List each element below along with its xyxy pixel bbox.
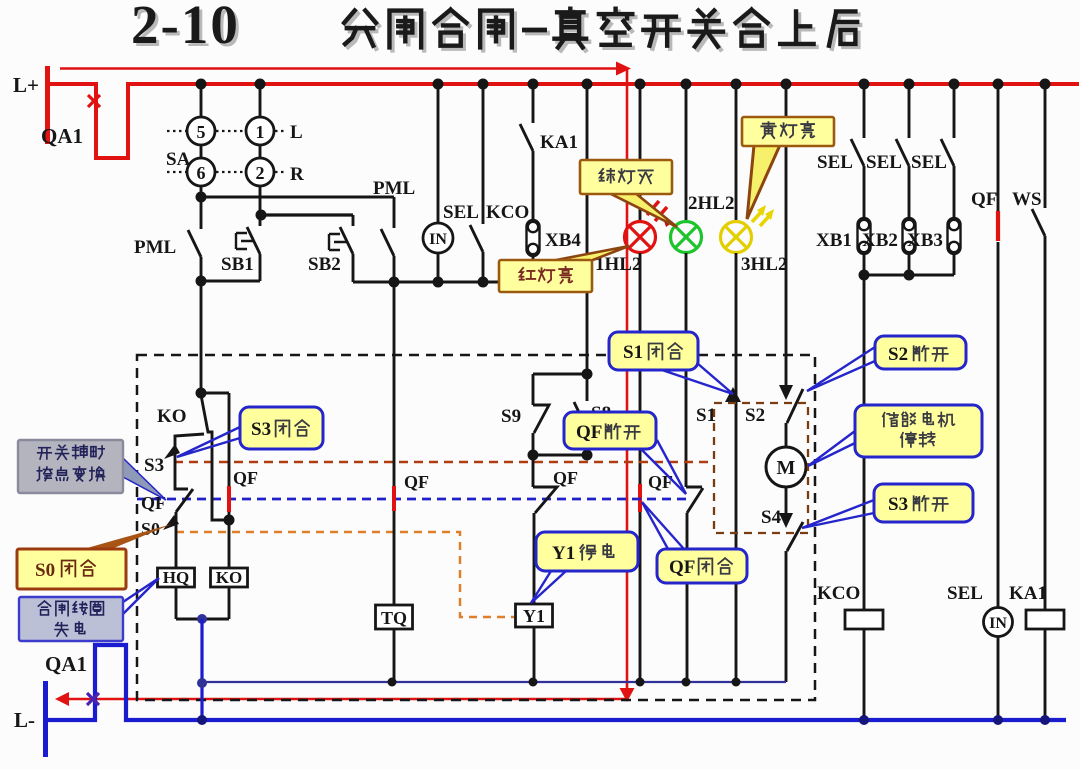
svg-text:SB1: SB1	[221, 254, 254, 275]
svg-text:2-10: 2-10	[131, 0, 240, 55]
svg-text:KO: KO	[157, 406, 187, 427]
svg-text:XB4: XB4	[545, 230, 581, 251]
svg-text:SEL: SEL	[866, 152, 902, 173]
svg-text:6: 6	[197, 163, 206, 183]
svg-text:Y1: Y1	[552, 543, 575, 564]
svg-text:QF: QF	[404, 472, 429, 492]
svg-text:TQ: TQ	[381, 608, 407, 628]
svg-text:5: 5	[197, 122, 206, 142]
svg-text:S9: S9	[501, 406, 521, 427]
svg-text:KCO: KCO	[817, 583, 860, 604]
svg-text:XB3: XB3	[907, 230, 943, 251]
svg-text:QF: QF	[971, 189, 997, 210]
svg-text:QF: QF	[576, 422, 602, 443]
svg-text:QF: QF	[553, 468, 578, 488]
svg-text:XB1: XB1	[816, 230, 852, 251]
svg-text:IN: IN	[989, 615, 1007, 632]
svg-text:S3: S3	[888, 494, 908, 515]
svg-text:IN: IN	[429, 231, 447, 248]
svg-text:XB2: XB2	[862, 230, 898, 251]
svg-text:PML: PML	[134, 237, 176, 258]
svg-text:QF: QF	[648, 472, 673, 492]
svg-text:2HL2: 2HL2	[688, 193, 734, 214]
svg-text:S3: S3	[144, 455, 164, 476]
svg-text:S4: S4	[761, 507, 782, 528]
svg-text:SB2: SB2	[308, 254, 341, 275]
svg-text:1: 1	[256, 122, 265, 142]
svg-text:QF: QF	[233, 468, 258, 488]
svg-text:SEL: SEL	[443, 202, 479, 223]
svg-text:QF: QF	[669, 557, 695, 578]
svg-text:M: M	[777, 457, 796, 479]
svg-text:S2: S2	[745, 405, 765, 426]
svg-text:QA1: QA1	[41, 124, 83, 148]
svg-text:2: 2	[256, 163, 265, 183]
svg-text:S1: S1	[623, 342, 643, 363]
svg-text:SEL: SEL	[817, 152, 853, 173]
svg-text:KA1: KA1	[1009, 583, 1047, 604]
svg-text:SEL: SEL	[947, 583, 983, 604]
svg-text:S3: S3	[251, 419, 271, 440]
svg-text:3HL2: 3HL2	[741, 254, 787, 275]
svg-text:S0: S0	[35, 560, 55, 581]
svg-text:KCO: KCO	[486, 202, 529, 223]
svg-text:L-: L-	[14, 708, 35, 732]
svg-text:HQ: HQ	[163, 568, 189, 587]
svg-text:Y1: Y1	[523, 606, 545, 626]
svg-text:WS: WS	[1012, 189, 1042, 210]
svg-text:KA1: KA1	[540, 132, 578, 153]
svg-text:S2: S2	[888, 344, 908, 365]
svg-text:PML: PML	[373, 178, 415, 199]
svg-text:SA: SA	[166, 149, 191, 170]
svg-text:QA1: QA1	[45, 652, 87, 676]
svg-text:L: L	[290, 122, 303, 143]
svg-text:R: R	[290, 164, 304, 185]
svg-text:SEL: SEL	[911, 152, 947, 173]
svg-text:KO: KO	[216, 568, 242, 587]
svg-text:L+: L+	[13, 73, 39, 97]
